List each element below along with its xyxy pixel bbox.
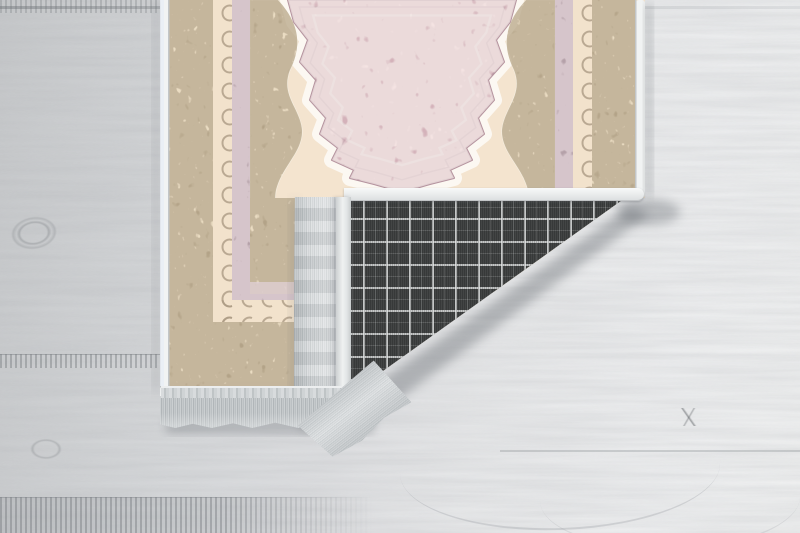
flap-selvage — [336, 197, 351, 398]
flap-fringe — [294, 197, 340, 400]
rug-product-photo — [0, 0, 800, 533]
flap-edge-binding — [344, 188, 644, 201]
